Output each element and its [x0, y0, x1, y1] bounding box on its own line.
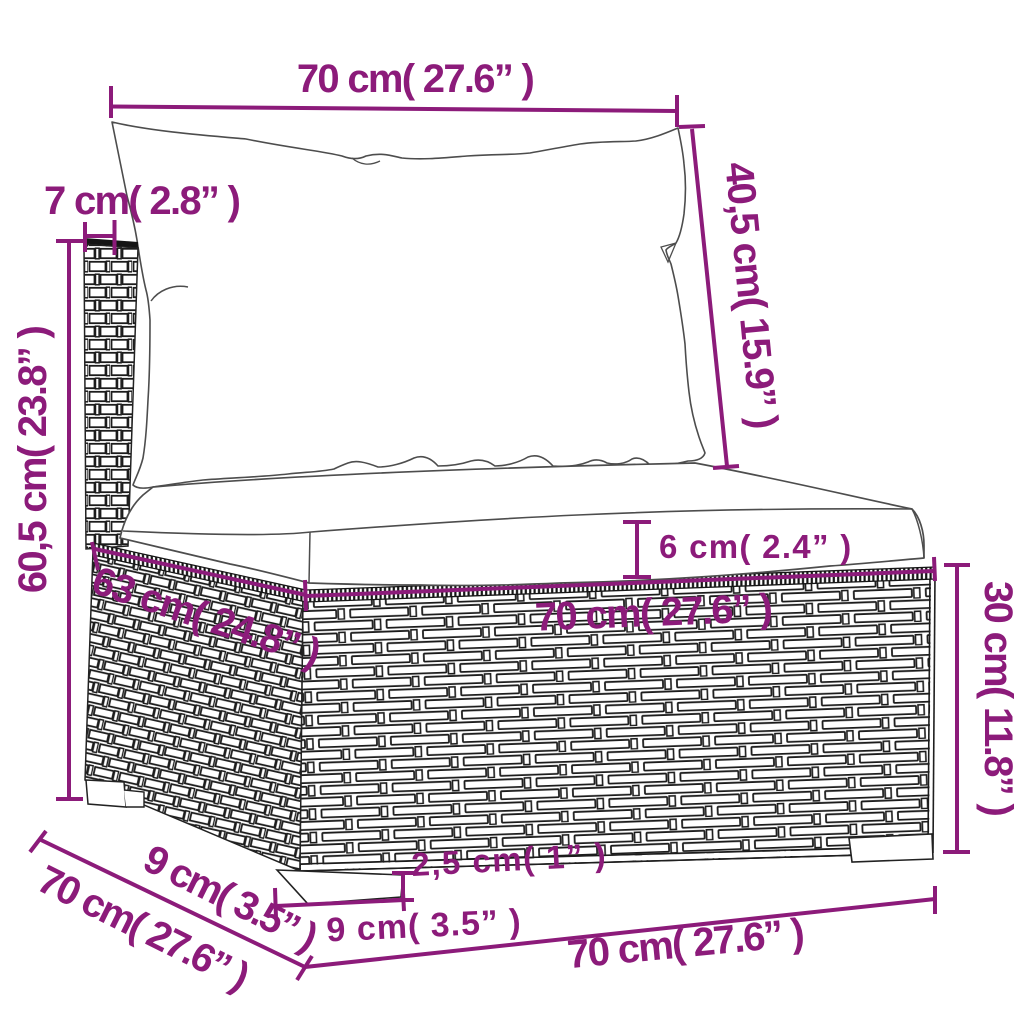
svg-text:7 cm( 2.8” ): 7 cm( 2.8” ) — [44, 179, 240, 223]
svg-text:70 cm( 27.6” ): 70 cm( 27.6” ) — [297, 57, 534, 101]
svg-text:30 cm( 11.8” ): 30 cm( 11.8” ) — [976, 581, 1020, 816]
svg-text:6 cm( 2.4” ): 6 cm( 2.4” ) — [659, 528, 853, 565]
svg-text:60,5 cm( 23.8” ): 60,5 cm( 23.8” ) — [11, 326, 55, 593]
